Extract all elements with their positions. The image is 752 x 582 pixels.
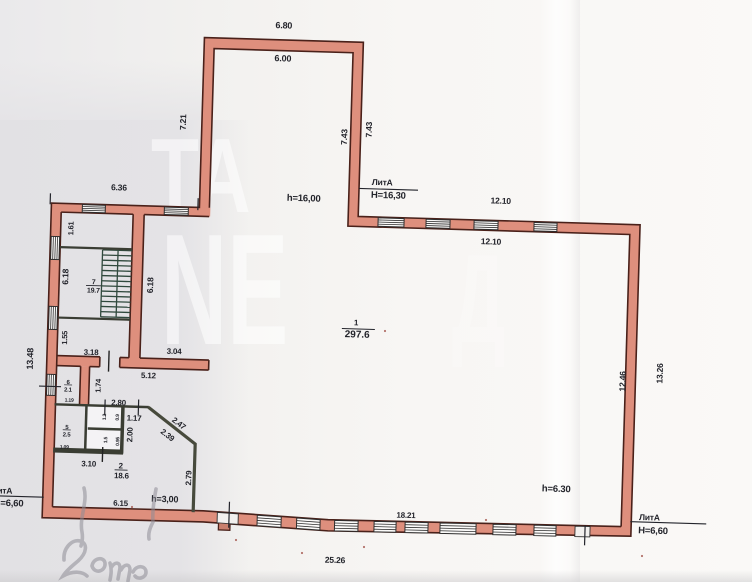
svg-text:0.95: 0.95 [115, 436, 121, 446]
svg-text:2.5: 2.5 [63, 432, 72, 438]
svg-text:6.18: 6.18 [60, 268, 70, 285]
svg-text:19.7: 19.7 [87, 287, 100, 294]
svg-text:1.61: 1.61 [66, 221, 75, 235]
svg-text:2.1: 2.1 [64, 387, 73, 393]
svg-text:6.36: 6.36 [111, 182, 128, 192]
svg-text:12.10: 12.10 [490, 195, 511, 206]
svg-text:12.46: 12.46 [617, 371, 628, 392]
svg-text:5.12: 5.12 [141, 371, 157, 380]
svg-text:6.80: 6.80 [275, 20, 292, 30]
svg-text:2.80: 2.80 [111, 398, 127, 407]
svg-text:1.74: 1.74 [94, 378, 103, 393]
svg-text:0.9: 0.9 [115, 414, 121, 421]
svg-text:1.09: 1.09 [60, 444, 70, 450]
svg-text:3.10: 3.10 [81, 459, 97, 468]
svg-text:6.15: 6.15 [113, 499, 129, 508]
svg-text:Н=6,60: Н=6,60 [638, 525, 668, 537]
svg-text:h=6.30: h=6.30 [542, 483, 571, 495]
svg-text:7.43: 7.43 [339, 129, 349, 146]
svg-text:1.2: 1.2 [102, 413, 108, 420]
svg-text:h=16,00: h=16,00 [287, 193, 321, 205]
svg-text:Д: Д [452, 229, 505, 368]
svg-text:2.00: 2.00 [125, 427, 134, 443]
svg-text:6.18: 6.18 [145, 277, 155, 294]
svg-text:1.17: 1.17 [127, 414, 143, 423]
svg-text:13.26: 13.26 [654, 363, 665, 384]
svg-text:2.79: 2.79 [184, 470, 193, 486]
svg-text:6.00: 6.00 [274, 53, 291, 63]
svg-text:18.21: 18.21 [396, 511, 416, 521]
svg-text:ЛитА: ЛитА [372, 177, 393, 188]
svg-text:297.6: 297.6 [345, 329, 371, 341]
svg-text:1.19: 1.19 [65, 398, 75, 404]
svg-text:7.43: 7.43 [364, 121, 374, 138]
svg-text:ЛитА: ЛитА [0, 485, 12, 496]
svg-text:12.10: 12.10 [481, 236, 502, 247]
svg-text:18.6: 18.6 [114, 471, 130, 480]
svg-text:Н=16,30: Н=16,30 [371, 190, 406, 202]
svg-text:7.21: 7.21 [178, 114, 188, 131]
svg-text:13.48: 13.48 [25, 348, 36, 370]
svg-text:1.5: 1.5 [103, 436, 109, 443]
svg-text:25.26: 25.26 [325, 555, 346, 566]
svg-text:ЛитА: ЛитА [639, 512, 660, 523]
svg-text:Н=6,60: Н=6,60 [0, 498, 24, 510]
svg-text:1.55: 1.55 [60, 331, 69, 345]
svg-text:3.18: 3.18 [84, 348, 100, 357]
svg-text:3.04: 3.04 [167, 347, 183, 356]
